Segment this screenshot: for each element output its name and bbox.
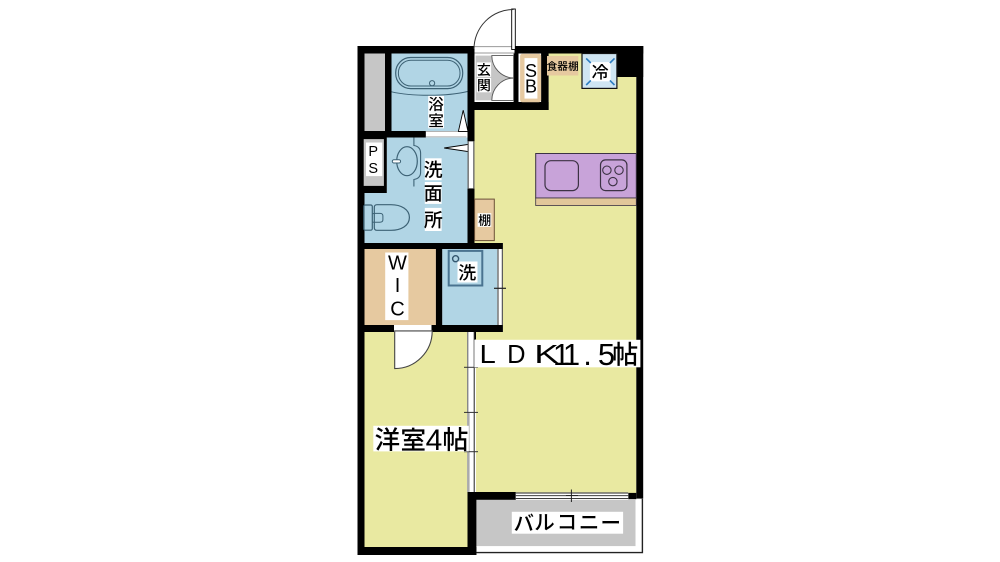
svg-text:P: P — [368, 144, 378, 160]
svg-text:S: S — [368, 161, 378, 177]
svg-text:1: 1 — [563, 337, 580, 372]
svg-text:B: B — [525, 76, 537, 96]
svg-text:I: I — [395, 275, 401, 297]
svg-text:D: D — [507, 341, 525, 369]
svg-text:4: 4 — [426, 424, 443, 457]
svg-text:5: 5 — [598, 337, 615, 372]
svg-text:W: W — [388, 252, 407, 274]
svg-text:C: C — [390, 299, 404, 321]
svg-text:.: . — [583, 337, 592, 372]
svg-text:L: L — [479, 340, 495, 369]
